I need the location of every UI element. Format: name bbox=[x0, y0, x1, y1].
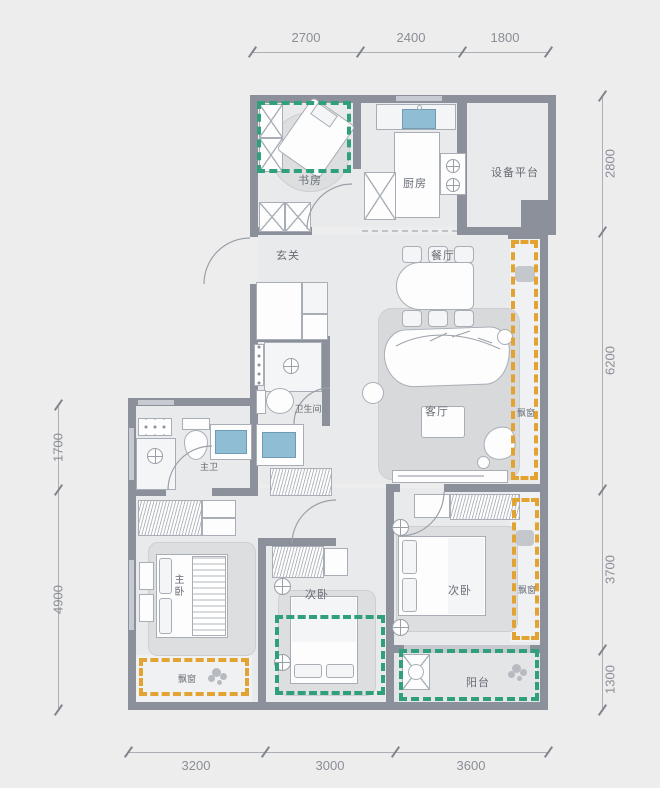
dim-right-2: 6200 bbox=[603, 339, 618, 383]
room-label-foyer: 玄关 bbox=[263, 247, 313, 263]
master-bath-sink bbox=[215, 430, 247, 454]
window-kitchen bbox=[396, 96, 442, 101]
bay-window-living-highlight bbox=[511, 240, 538, 480]
room-label-study: 书房 bbox=[285, 172, 335, 188]
dim-right-4: 1300 bbox=[603, 658, 618, 702]
bench bbox=[139, 562, 154, 590]
wall bbox=[258, 538, 336, 546]
foyer-shoe-cabinet bbox=[259, 202, 285, 232]
guest-bath-panel bbox=[254, 344, 264, 386]
room-label-bedroom2: 次卧 bbox=[293, 586, 341, 602]
pillow bbox=[402, 578, 417, 612]
bench bbox=[139, 594, 154, 622]
room-label-kitchen: 厨房 bbox=[390, 175, 440, 191]
dim-bottom-3: 3600 bbox=[449, 758, 493, 773]
foyer-cabinet bbox=[256, 282, 302, 340]
kitchen-sink bbox=[402, 109, 436, 129]
wall bbox=[386, 484, 394, 702]
toilet-tank bbox=[182, 418, 210, 430]
dim-right-1: 2800 bbox=[603, 142, 618, 186]
room-label-balcony: 阳台 bbox=[454, 674, 502, 690]
dim-tick bbox=[54, 704, 63, 716]
master-bed-blanket bbox=[192, 556, 226, 636]
master-bath-cabinet bbox=[138, 418, 172, 436]
side-table bbox=[362, 382, 384, 404]
dining-chair bbox=[428, 310, 448, 327]
room-label-living: 客厅 bbox=[412, 403, 462, 419]
bedroom2-wardrobe bbox=[272, 546, 324, 578]
kitchen-faucet bbox=[417, 105, 422, 110]
wall bbox=[258, 545, 266, 702]
study-highlight bbox=[257, 101, 351, 173]
window-left-2 bbox=[129, 560, 134, 630]
ottoman bbox=[477, 456, 490, 469]
dim-left-2: 4900 bbox=[51, 578, 66, 622]
dim-left-1: 1700 bbox=[51, 426, 66, 470]
bedroom2-wardrobe-box bbox=[324, 548, 348, 576]
window-master-bath bbox=[138, 400, 174, 405]
foyer-cabinet bbox=[302, 282, 328, 314]
tv-console-line bbox=[398, 475, 484, 477]
foyer-cabinet bbox=[302, 314, 328, 340]
shower-icon bbox=[147, 448, 163, 464]
master-wardrobe-box bbox=[202, 500, 236, 518]
room-label-master-bedroom: 主卧 bbox=[170, 574, 185, 598]
dining-table bbox=[396, 262, 474, 310]
pillow bbox=[402, 540, 417, 574]
wall bbox=[128, 702, 548, 710]
pillow bbox=[159, 598, 172, 634]
stove-burner-icon bbox=[446, 178, 460, 192]
toilet-tank bbox=[256, 390, 266, 414]
corridor-vanity-sink bbox=[262, 432, 296, 458]
nightstand-lamp-icon bbox=[392, 619, 409, 636]
wall bbox=[508, 233, 540, 239]
room-label-bedroom3: 次卧 bbox=[436, 582, 484, 598]
dining-chair bbox=[454, 310, 474, 327]
room-label-equipment: 设备平台 bbox=[475, 164, 555, 180]
room-label-guest-bath: 卫生间 bbox=[288, 402, 328, 415]
dim-top-1: 2700 bbox=[284, 30, 328, 45]
linen-cabinet bbox=[270, 468, 332, 496]
bay-window-bedroom3-highlight bbox=[512, 498, 539, 640]
dim-right-3: 3700 bbox=[603, 548, 618, 592]
master-wardrobe-box bbox=[202, 518, 236, 536]
bedroom3-wardrobe bbox=[450, 494, 520, 520]
shower-icon bbox=[283, 358, 299, 374]
room-label-bay-bedroom3: 飘窗 bbox=[516, 583, 538, 596]
foyer-shoe-cabinet bbox=[285, 202, 311, 232]
dim-bottom-1: 3200 bbox=[174, 758, 218, 773]
nightstand-lamp-icon bbox=[392, 519, 409, 536]
bedroom2-highlight bbox=[275, 615, 385, 695]
stove-burner-icon bbox=[446, 159, 460, 173]
dim-line-bottom bbox=[128, 752, 548, 753]
dim-top-2: 2400 bbox=[389, 30, 433, 45]
bedroom3-blanket bbox=[448, 538, 484, 614]
room-label-bay-master: 飘窗 bbox=[172, 672, 202, 685]
dim-line-top bbox=[252, 52, 548, 53]
dim-bottom-2: 3000 bbox=[308, 758, 352, 773]
wall bbox=[353, 95, 361, 169]
master-wardrobe bbox=[138, 500, 202, 536]
wall bbox=[444, 484, 548, 492]
nightstand-lamp-icon bbox=[274, 578, 291, 595]
room-label-master-bath: 主卫 bbox=[194, 460, 224, 473]
dim-top-3: 1800 bbox=[483, 30, 527, 45]
room-label-dining: 餐厅 bbox=[418, 247, 468, 263]
dim-line-right bbox=[602, 96, 603, 710]
wall bbox=[212, 488, 258, 496]
dining-chair bbox=[402, 310, 422, 327]
bedroom3-wardrobe-box bbox=[414, 494, 450, 518]
sofa bbox=[383, 326, 511, 388]
window-left-1 bbox=[129, 428, 134, 480]
room-label-bay-living: 飘窗 bbox=[515, 406, 537, 419]
wall bbox=[540, 227, 548, 710]
shower-stall bbox=[136, 438, 176, 490]
dim-tick bbox=[598, 704, 607, 716]
floor-plan: 书房 厨房 设备平台 玄关 餐厅 客厅 卫生间 主卫 主卧 次卧 次卧 阳台 飘… bbox=[0, 0, 660, 788]
